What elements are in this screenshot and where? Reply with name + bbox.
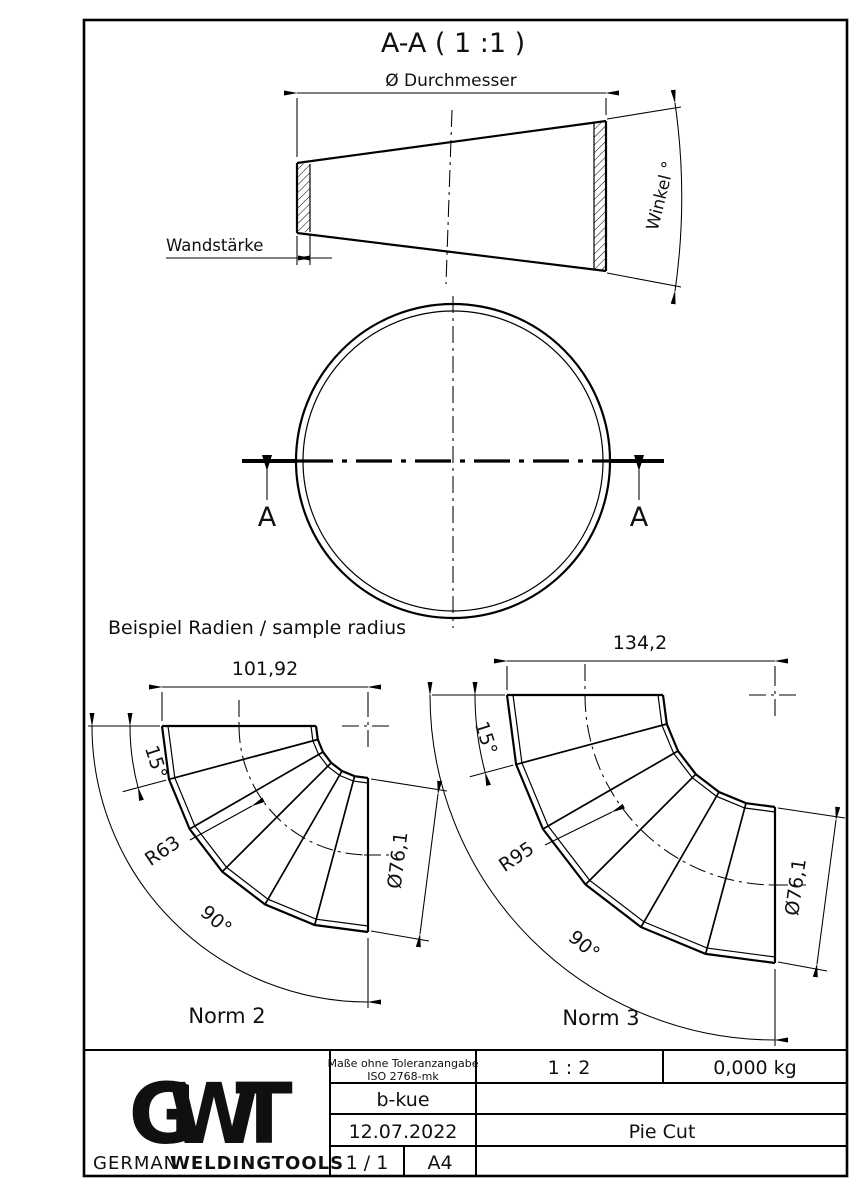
- norm3-elbow-outline: [507, 664, 806, 963]
- logo-letter-t: T: [235, 1065, 292, 1163]
- wall-thickness-dimension: Wandstärke: [166, 235, 332, 265]
- norm3-length-dimension: 134,2: [507, 632, 775, 690]
- plan-view: A A: [242, 296, 664, 628]
- drawing-sheet: A-A ( 1 :1 ) Ø Durchmesser Wandstärke: [0, 0, 868, 1199]
- norm3-diameter-dimension: Ø76,1: [778, 808, 845, 971]
- samples-heading: Beispiel Radien / sample radius: [108, 617, 406, 639]
- logo-subtext-light: GERMAN: [93, 1153, 178, 1174]
- norm2-diameter-value: Ø76,1: [384, 831, 413, 891]
- sheet-number: 1 / 1: [346, 1152, 389, 1174]
- norm2-length-dimension: 101,92: [162, 658, 368, 721]
- drawn-by-value: b-kue: [376, 1089, 429, 1111]
- section-view: A-A ( 1 :1 ) Ø Durchmesser Wandstärke: [166, 28, 682, 291]
- norm3-segment-angle-value: 15°: [470, 719, 501, 758]
- norm2-length-value: 101,92: [232, 658, 298, 680]
- norm2-segment-angle-dimension: 15°: [88, 726, 171, 792]
- norm3-segment-angle-dimension: 15°: [432, 695, 513, 777]
- paper-format: A4: [427, 1152, 452, 1174]
- technical-drawing-canvas: A-A ( 1 :1 ) Ø Durchmesser Wandstärke: [0, 0, 868, 1199]
- cone-outline: [297, 110, 606, 284]
- wall-thickness-label: Wandstärke: [166, 236, 263, 255]
- tolerance-note-line1: Maße ohne Toleranzangabe: [328, 1057, 479, 1070]
- drawing-frame: [84, 20, 847, 1176]
- norm3-length-value: 134,2: [613, 632, 667, 654]
- section-title: A-A ( 1 :1 ): [381, 28, 525, 59]
- part-name: Pie Cut: [629, 1121, 696, 1143]
- weight-value: 0,000 kg: [713, 1057, 797, 1079]
- scale-value: 1 : 2: [548, 1057, 591, 1079]
- section-marker-left: A: [258, 502, 277, 533]
- norm2-segment-angle-value: 15°: [140, 743, 171, 782]
- norm3-radius-value: R95: [495, 837, 538, 876]
- diameter-dimension-label: Ø Durchmesser: [385, 71, 517, 91]
- norm3-diameter-value: Ø76,1: [781, 857, 811, 917]
- angle-label: Winkel °: [643, 159, 679, 232]
- logo-subtext-bold: WELDINGTOOLS: [170, 1153, 344, 1174]
- norm2-name: Norm 2: [188, 1004, 265, 1028]
- norm3-name: Norm 3: [562, 1006, 639, 1030]
- norm3-view: 134,2 15° 90° R95 Ø76,1 Norm 3: [430, 632, 845, 1046]
- date-value: 12.07.2022: [349, 1121, 458, 1143]
- tolerance-note-line2: ISO 2768-mk: [367, 1070, 439, 1083]
- angle-dimension: Winkel °: [607, 103, 682, 291]
- norm2-diameter-dimension: Ø76,1: [371, 779, 447, 941]
- company-logo: G W T GERMAN WELDINGTOOLS: [93, 1065, 344, 1174]
- title-block: G W T GERMAN WELDINGTOOLS Maße ohne Tole…: [83, 1050, 848, 1176]
- norm2-bend-angle-value: 90°: [196, 901, 236, 940]
- section-marker-right: A: [630, 502, 649, 533]
- norm2-elbow-outline: [162, 700, 396, 932]
- norm2-radius-value: R63: [141, 831, 184, 870]
- norm3-bend-angle-value: 90°: [564, 926, 604, 965]
- norm2-view: 101,92 15° 90° R63 Ø76,1 Norm 2: [88, 658, 447, 1028]
